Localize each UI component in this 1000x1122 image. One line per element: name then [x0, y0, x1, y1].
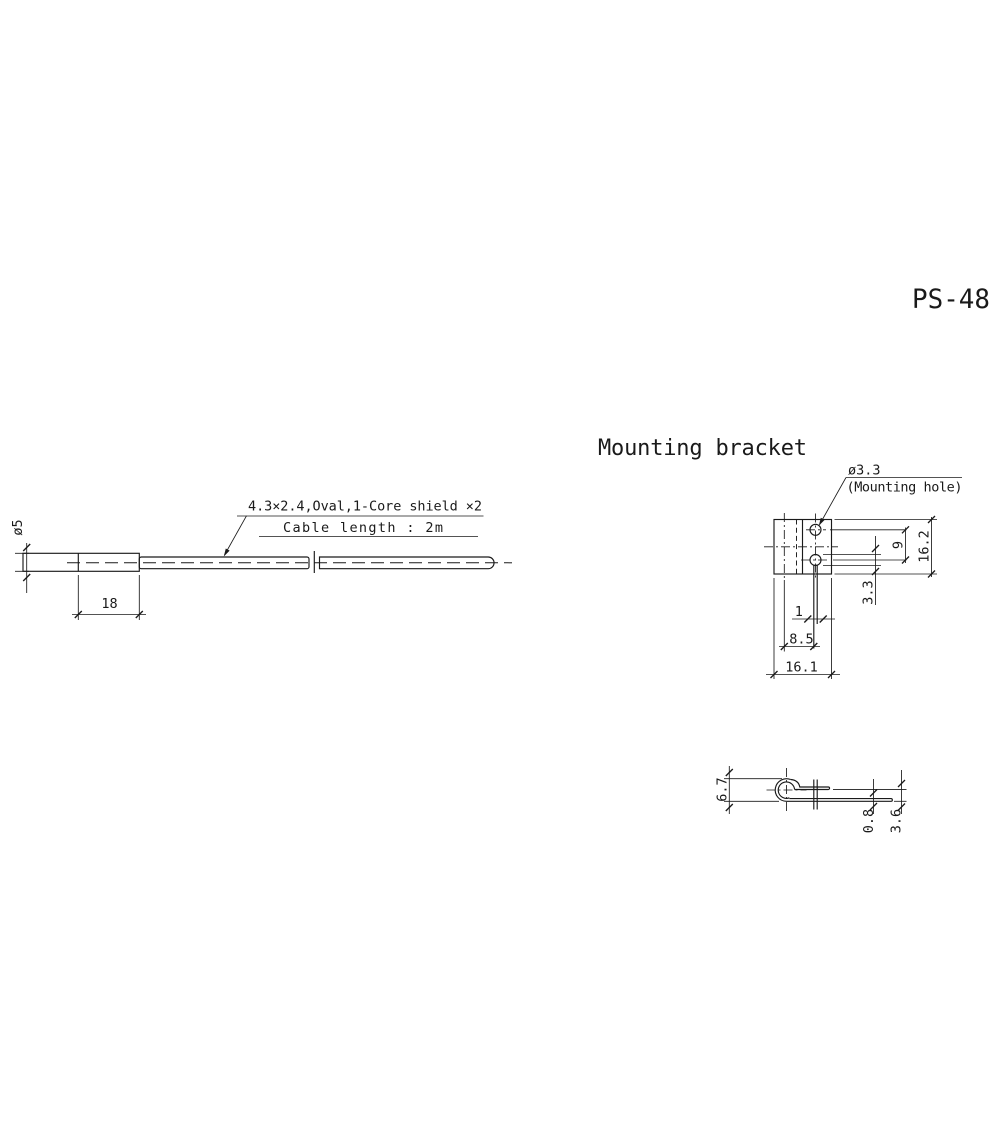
model-number-label: PS-48 — [912, 284, 990, 315]
dim-body-length-text: 18 — [101, 596, 117, 612]
mounting-bracket-heading: Mounting bracket — [598, 436, 807, 461]
dim-hole-diameter-text: 3.3 — [861, 580, 877, 604]
bracket-side-view: 6.7 0.8 3.6 — [715, 766, 907, 833]
dim-opening-text: 3.6 — [889, 809, 905, 833]
dim-thickness-text: 0.8 — [861, 809, 877, 833]
hole-diameter-label: ø3.3 — [848, 463, 881, 479]
drawing-sheet: PS-48 4.3×2.4,Oval,1-Core shield ×2 Cabl… — [0, 0, 1000, 1122]
dim-overall-depth-text: 16.2 — [917, 530, 933, 563]
technical-drawing: PS-48 4.3×2.4,Oval,1-Core shield ×2 Cabl… — [0, 0, 1000, 1122]
hole-callout-sublabel: (Mounting hole) — [847, 480, 963, 496]
callout-leader-line — [820, 478, 846, 525]
dim-body-diameter-text: ø5 — [10, 519, 26, 535]
mounting-hole-callout: ø3.3 (Mounting hole) — [817, 463, 963, 527]
dim-clip-height-text: 6.7 — [715, 777, 731, 801]
dim-overall-width-text: 16.1 — [785, 660, 818, 676]
clip-bottom-strip — [787, 799, 893, 802]
note-leader-line — [225, 516, 247, 555]
sensor-body-outline — [23, 553, 139, 571]
bracket-top-view: 16.2 9 3.3 1 8.5 16.1 — [764, 513, 937, 679]
dim-slot-offset-text: 8.5 — [789, 632, 813, 648]
cable-spec-note: 4.3×2.4,Oval,1-Core shield ×2 — [248, 499, 482, 515]
dim-hole-pitch-text: 9 — [891, 541, 907, 549]
clip-upper-leaf — [791, 780, 830, 790]
sensor-view: 4.3×2.4,Oval,1-Core shield ×2 Cable leng… — [10, 499, 512, 621]
cable-length-note: Cable length : 2m — [283, 520, 443, 536]
note-leader-arrow — [222, 548, 230, 557]
dim-slot-width-text: 1 — [795, 604, 803, 620]
